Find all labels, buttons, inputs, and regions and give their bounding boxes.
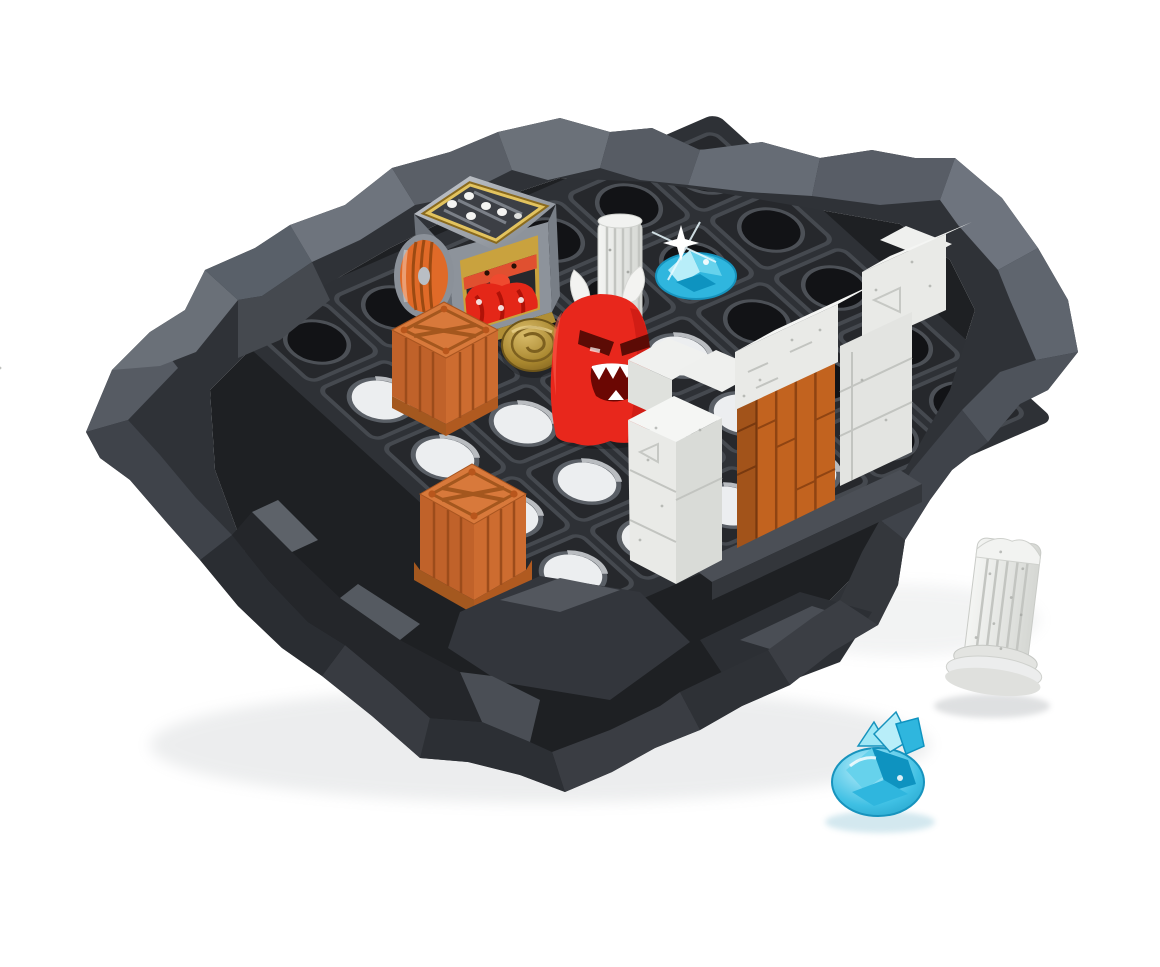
crate-rivet xyxy=(441,306,448,313)
beard-highlight xyxy=(476,299,482,305)
column-top xyxy=(598,214,642,228)
die-pip xyxy=(466,212,476,220)
barrel-highlight xyxy=(404,250,406,302)
dwarf-eye xyxy=(484,270,489,275)
pillar-front xyxy=(628,420,676,584)
beard-highlight xyxy=(518,297,524,303)
gem-glint xyxy=(897,775,903,781)
pillar-side xyxy=(676,418,722,584)
die-pip xyxy=(447,200,457,208)
stone-speckle xyxy=(627,271,630,274)
barrel-hub xyxy=(418,267,430,285)
die-pip xyxy=(481,202,491,210)
crate-rivet xyxy=(468,468,475,475)
sparkle-dot xyxy=(703,259,709,265)
die-pip xyxy=(464,192,474,200)
stone-speckle xyxy=(609,249,612,252)
product-photo xyxy=(0,0,1160,967)
column-shadow xyxy=(934,694,1050,718)
crate-rivet xyxy=(510,490,517,497)
dwarf-eye xyxy=(511,263,516,268)
crate-rivet xyxy=(470,512,477,519)
door-shade xyxy=(737,393,757,556)
crate-token-back xyxy=(392,302,498,436)
crate-rivet xyxy=(401,327,408,334)
rock-facet xyxy=(812,150,955,205)
beard-highlight xyxy=(498,305,504,311)
scene-canvas xyxy=(0,0,1160,967)
crate-rivet xyxy=(443,348,450,355)
die-pip xyxy=(497,208,507,216)
die-pip xyxy=(514,213,522,219)
crate-rivet xyxy=(428,490,435,497)
crate-rivet xyxy=(483,327,490,334)
